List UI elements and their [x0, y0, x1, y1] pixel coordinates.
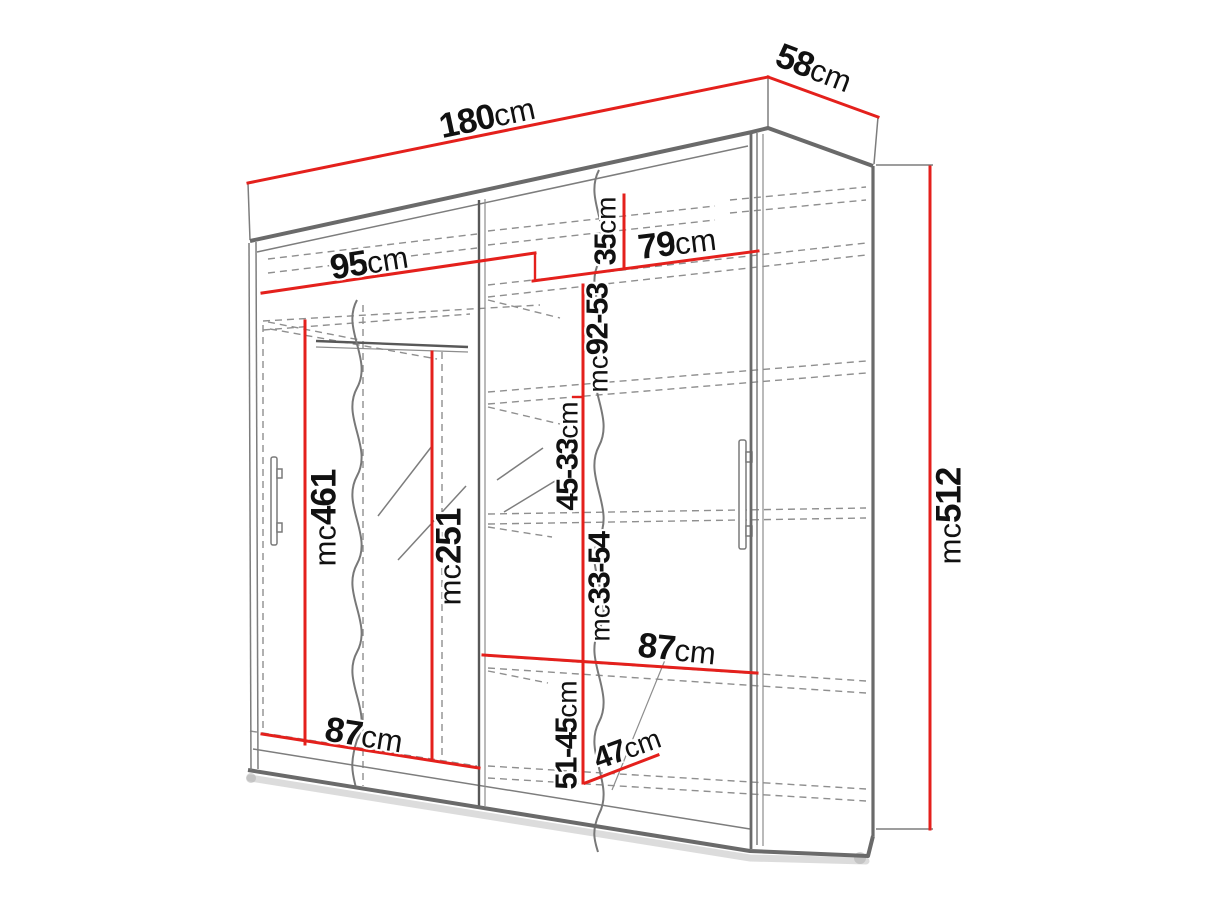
dim-value: 92-53: [580, 283, 615, 355]
dim-unit: mc: [583, 355, 614, 392]
wardrobe-diagram-canvas: [0, 0, 1216, 912]
wardrobe-dimension-diagram: 180cm 58cm mc512 95cm 79cm 35cm mc92-53 …: [0, 0, 1216, 912]
dim-value: 87: [322, 710, 365, 754]
dim-unit: mc: [933, 523, 968, 564]
dim-unit: cm: [591, 197, 622, 234]
dim-value: 95: [327, 243, 370, 287]
dim-unit: mc: [308, 525, 343, 566]
dim-value: 512: [930, 468, 969, 523]
dim-label-bottom-section-height: 51-45cm: [551, 680, 582, 789]
dim-unit: mc: [585, 604, 616, 641]
dim-unit: cm: [673, 632, 718, 671]
dim-label-middle-shelf-spacing: 45-33cm: [552, 401, 583, 510]
dim-label-overall-height: mc512: [932, 468, 967, 565]
dim-unit: cm: [553, 401, 584, 438]
dim-value: 33-54: [582, 532, 617, 604]
dim-label-lower-shelf-spacing: mc33-54: [584, 532, 615, 641]
hanging-rail: [316, 341, 468, 347]
dim-unit: cm: [552, 680, 583, 717]
dim-value: 87: [636, 626, 677, 669]
dim-label-second-shelf-spacing: mc92-53: [582, 283, 613, 392]
dim-unit: mc: [433, 564, 468, 605]
dim-value: 251: [430, 509, 469, 564]
dim-label-mirror-strip-height: mc251: [432, 509, 467, 606]
dim-value: 79: [636, 224, 677, 267]
dim-value: 35: [588, 234, 623, 265]
dim-value: 461: [305, 470, 344, 525]
dim-value: 51-45: [549, 718, 584, 790]
dim-value: 45-33: [550, 439, 585, 511]
dim-label-top-shelf-spacing: 35cm: [590, 197, 621, 266]
dim-label-right-shelf-width: 87cm: [636, 628, 717, 671]
dim-unit: cm: [364, 240, 410, 281]
dim-label-left-hanging-height: mc461: [307, 470, 342, 567]
dim-unit: cm: [359, 718, 405, 759]
dim-unit: cm: [673, 222, 718, 262]
left-door-handle: [271, 457, 282, 545]
